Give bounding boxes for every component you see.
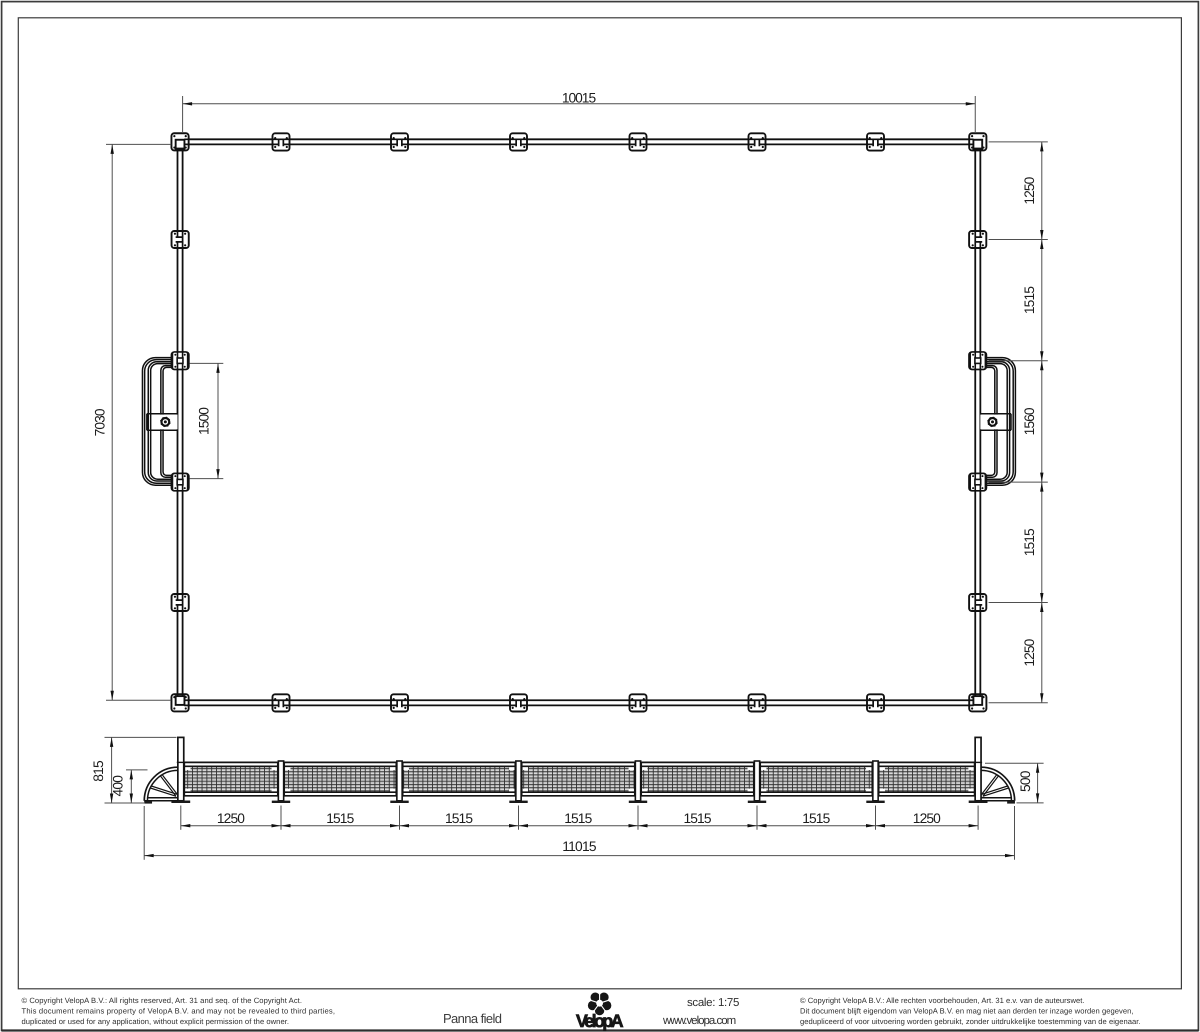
svg-text:1560: 1560 [1022, 407, 1037, 435]
svg-text:© Copyright VelopA B.V.: Alle: © Copyright VelopA B.V.: Alle rechten vo… [800, 996, 1085, 1005]
svg-text:1515: 1515 [326, 811, 354, 826]
svg-text:10015: 10015 [562, 90, 597, 105]
svg-text:1250: 1250 [1022, 638, 1037, 666]
svg-text:1500: 1500 [197, 407, 212, 435]
svg-text:1515: 1515 [1022, 286, 1037, 314]
svg-text:This document remains property: This document remains property of VelopA… [22, 1007, 336, 1016]
svg-text:1515: 1515 [1022, 528, 1037, 556]
svg-text:Dit document blijft eigendom v: Dit document blijft eigendom van VelopA … [800, 1007, 1134, 1016]
svg-text:1515: 1515 [684, 811, 712, 826]
svg-text:Panna field: Panna field [443, 1011, 502, 1026]
svg-text:815: 815 [91, 760, 106, 782]
svg-text:1250: 1250 [1022, 176, 1037, 204]
svg-text:1515: 1515 [445, 811, 473, 826]
svg-text:400: 400 [110, 775, 125, 797]
svg-text:© Copyright VelopA B.V.: All r: © Copyright VelopA B.V.: All rights rese… [22, 996, 303, 1005]
svg-text:gedupliceerd of voor uitvoerin: gedupliceerd of voor uitvoering worden g… [800, 1017, 1141, 1026]
svg-text:1250: 1250 [217, 811, 245, 826]
svg-text:www.velopa.com: www.velopa.com [662, 1015, 736, 1027]
svg-text:duplicated or used for any app: duplicated or used for any application, … [22, 1017, 290, 1026]
svg-text:1250: 1250 [913, 811, 941, 826]
svg-text:1515: 1515 [802, 811, 830, 826]
svg-text:1515: 1515 [564, 811, 592, 826]
svg-text:500: 500 [1018, 770, 1033, 792]
svg-text:scale: 1:75: scale: 1:75 [687, 997, 739, 1009]
svg-text:VelopA: VelopA [576, 1011, 624, 1031]
svg-text:11015: 11015 [562, 839, 597, 854]
svg-text:7030: 7030 [93, 408, 108, 436]
